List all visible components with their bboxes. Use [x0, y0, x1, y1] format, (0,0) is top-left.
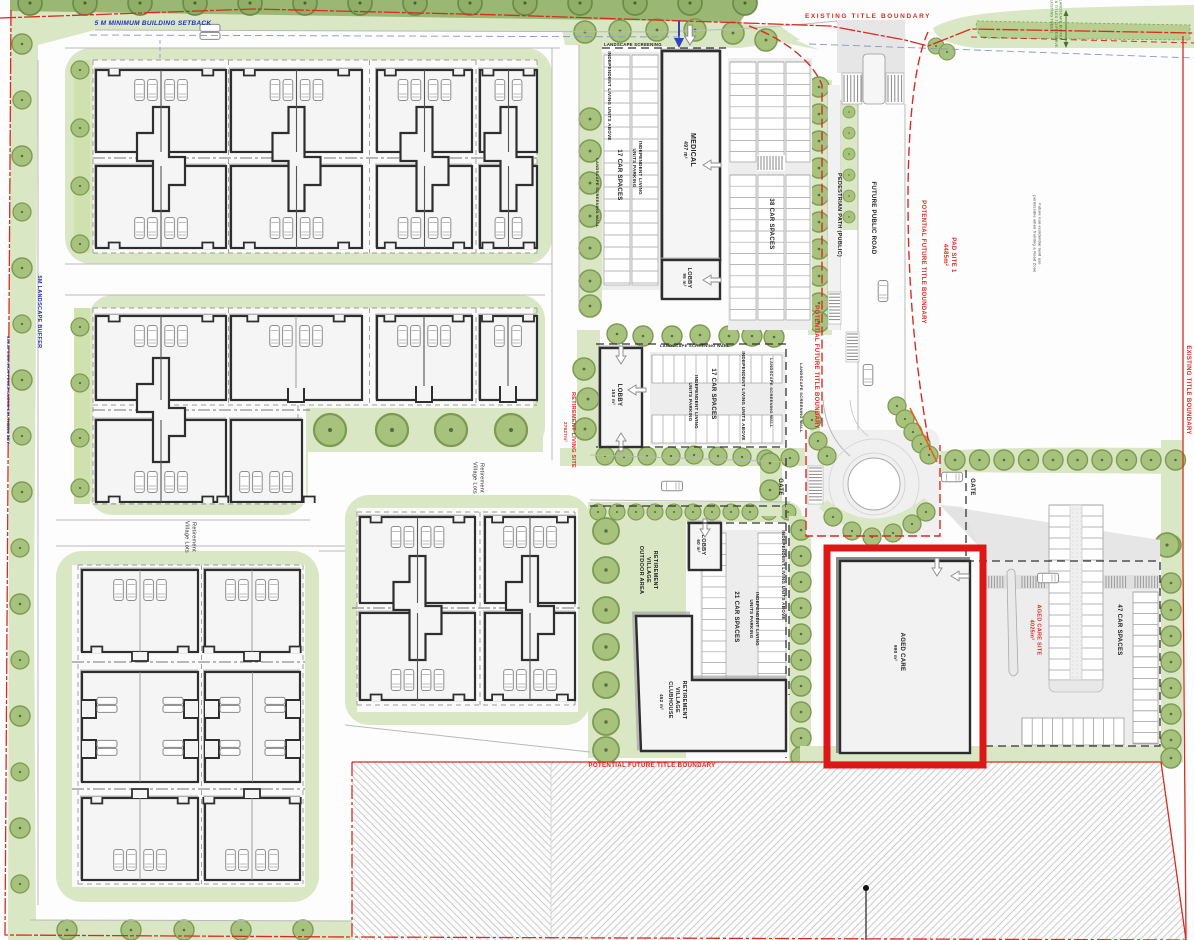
svg-text:POTENTIAL FUTURE TITLE BOUNDAR: POTENTIAL FUTURE TITLE BOUNDARY: [588, 762, 716, 769]
svg-text:38 CAR SPACES: 38 CAR SPACES: [768, 198, 774, 249]
svg-text:21 CAR SPACES: 21 CAR SPACES: [733, 591, 739, 642]
svg-text:Retirement: Retirement: [191, 522, 197, 552]
svg-text:GATE: GATE: [969, 478, 975, 495]
svg-text:EXISTING TREES): EXISTING TREES): [1050, 0, 1054, 33]
svg-text:95 m²: 95 m²: [682, 273, 687, 286]
svg-text:INDEPENDENT LIVING: INDEPENDENT LIVING: [638, 141, 643, 195]
svg-text:LANDSCAPE SCREENING WALL: LANDSCAPE SCREENING WALL: [799, 363, 804, 433]
svg-text:153 m²: 153 m²: [611, 389, 616, 405]
svg-text:INDEPENDENT LIVING: INDEPENDENT LIVING: [755, 592, 760, 646]
svg-text:47 CAR SPACES: 47 CAR SPACES: [1116, 604, 1122, 655]
svg-text:AGED CARE: AGED CARE: [899, 633, 905, 672]
svg-text:4485m²: 4485m²: [942, 244, 949, 266]
svg-text:Future non-residential land us: Future non-residential land use: [1038, 203, 1042, 265]
svg-text:RETIREMENT: RETIREMENT: [681, 681, 687, 720]
svg-text:POTENTIAL FUTURE TITLE BOUNDAR: POTENTIAL FUTURE TITLE BOUNDARY: [920, 200, 926, 324]
svg-text:27627m²: 27627m²: [563, 422, 568, 442]
svg-text:17 CAR SPACES: 17 CAR SPACES: [616, 149, 622, 200]
svg-text:INDEPENDENT LIVING: INDEPENDENT LIVING: [694, 375, 699, 429]
svg-text:AGED CARE SITE: AGED CARE SITE: [1036, 605, 1042, 656]
svg-text:GATE: GATE: [777, 478, 783, 495]
svg-text:VILLAGE: VILLAGE: [645, 557, 651, 583]
svg-text:RETIREMENT: RETIREMENT: [652, 551, 658, 590]
svg-text:PEDESTRIAN PATH (PUBLIC): PEDESTRIAN PATH (PUBLIC): [836, 173, 842, 257]
svg-text:497 m²: 497 m²: [682, 141, 688, 159]
svg-text:Retirement: Retirement: [479, 463, 485, 493]
svg-text:CLUBHOUSE: CLUBHOUSE: [667, 681, 673, 719]
svg-text:4025m²: 4025m²: [1029, 620, 1036, 641]
svg-text:5 M MINIMUM BUILDING SETBACK: 5 M MINIMUM BUILDING SETBACK: [95, 20, 213, 27]
svg-text:POTENTIAL FUTURE TITLE BOUNDAR: POTENTIAL FUTURE TITLE BOUNDARY: [813, 305, 819, 429]
svg-text:EXISTING TITLE BOUNDARY: EXISTING TITLE BOUNDARY: [1185, 345, 1191, 434]
svg-text:UNITS PARKING: UNITS PARKING: [632, 148, 637, 187]
svg-text:OUTDOOR AREA: OUTDOOR AREA: [638, 546, 644, 595]
svg-text:UNITS PARKING: UNITS PARKING: [688, 382, 693, 421]
svg-text:Village Lots: Village Lots: [472, 462, 478, 494]
svg-text:INDEPENDENT LIVING UNITS ABOVE: INDEPENDENT LIVING UNITS ABOVE: [607, 51, 612, 140]
svg-text:LANDSCAPE SCREENING WALL: LANDSCAPE SCREENING WALL: [769, 358, 774, 428]
svg-text:Village Lots: Village Lots: [184, 521, 190, 553]
svg-text:452 m²: 452 m²: [659, 694, 664, 710]
svg-text:5M LANDSCAPE BUFFER: 5M LANDSCAPE BUFFER: [36, 276, 42, 349]
svg-text:PAD SITE 1: PAD SITE 1: [950, 237, 956, 273]
svg-text:RETIREMENT LIVING SITE: RETIREMENT LIVING SITE: [570, 392, 576, 468]
svg-text:60 m²: 60 m²: [696, 539, 701, 552]
svg-text:permissible when fronting a Ro: permissible when fronting a Road Zone: [1033, 195, 1037, 272]
svg-text:INDEPENDENT LIVING UNITS ABOVE: INDEPENDENT LIVING UNITS ABOVE: [781, 530, 786, 619]
svg-text:INDEPENDENT LIVING UNITS ABOVE: INDEPENDENT LIVING UNITS ABOVE: [741, 351, 746, 440]
svg-text:990 m²: 990 m²: [893, 645, 898, 661]
svg-text:BETWEEN TITLES TO PRESERVE: BETWEEN TITLES TO PRESERVE: [1054, 0, 1058, 48]
svg-text:(5M LANDSCAPE BUFFER: (5M LANDSCAPE BUFFER: [1059, 0, 1063, 41]
svg-text:LANDSCAPE SCREENING WALL: LANDSCAPE SCREENING WALL: [660, 343, 730, 348]
svg-text:EXISTING TITLE BOUNDARY: EXISTING TITLE BOUNDARY: [805, 13, 931, 20]
svg-text:VILLAGE: VILLAGE: [674, 687, 680, 713]
svg-text:LANDSCAPE SCREENING WALL: LANDSCAPE SCREENING WALL: [595, 158, 600, 228]
svg-text:FUTURE PUBLIC ROAD: FUTURE PUBLIC ROAD: [870, 181, 876, 254]
svg-text:UNITS PARKING: UNITS PARKING: [749, 599, 754, 638]
svg-text:17 CAR SPACES: 17 CAR SPACES: [710, 368, 716, 419]
svg-text:LANDSCAPE SCREENING: LANDSCAPE SCREENING: [604, 42, 662, 47]
svg-text:SOLID 1.8M HIGH FENCE ALONG SO: SOLID 1.8M HIGH FENCE ALONG SOUTHERN BDY: [6, 336, 11, 445]
svg-text:MEDICAL: MEDICAL: [689, 133, 696, 167]
